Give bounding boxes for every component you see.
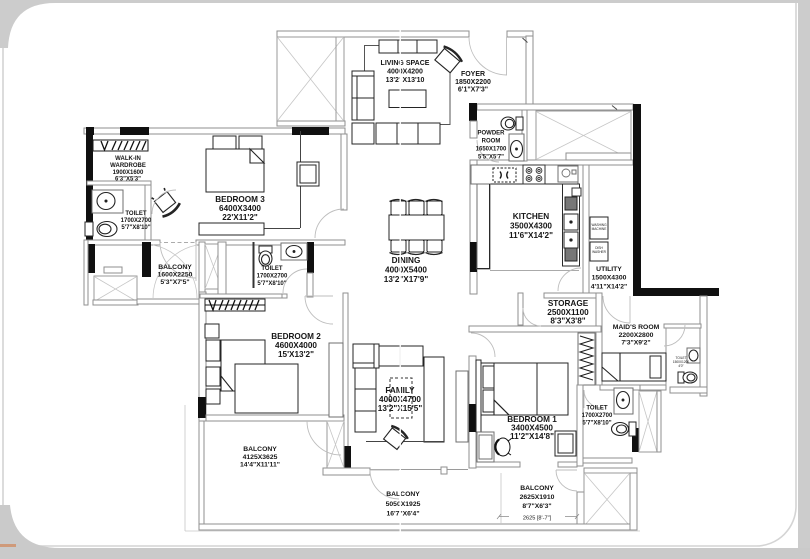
svg-text:4000X4200: 4000X4200 (387, 69, 423, 76)
svg-text:BALCONY: BALCONY (386, 491, 420, 498)
svg-text:WALK-IN: WALK-IN (115, 156, 141, 162)
svg-text:5'7"X8'10": 5'7"X8'10" (121, 225, 150, 231)
svg-text:2625 [8'-7"]: 2625 [8'-7"] (523, 516, 552, 522)
svg-text:WARDROBE: WARDROBE (110, 163, 146, 169)
svg-text:11'2"X14'8": 11'2"X14'8" (510, 432, 554, 441)
svg-text:MACHINE: MACHINE (592, 227, 607, 231)
svg-text:LIVING SPACE: LIVING SPACE (381, 60, 430, 67)
svg-text:POWDER: POWDER (478, 131, 506, 137)
svg-text:13'2"X17'9": 13'2"X17'9" (384, 275, 429, 284)
svg-text:1700X2700: 1700X2700 (257, 274, 288, 280)
svg-text:1700X2700: 1700X2700 (582, 413, 613, 419)
svg-text:1700X2700: 1700X2700 (121, 218, 152, 224)
svg-text:1500X4300: 1500X4300 (592, 275, 627, 282)
svg-text:WASHER: WASHER (592, 250, 607, 254)
svg-text:MAID'S ROOM: MAID'S ROOM (613, 324, 660, 331)
svg-text:22'X11'2": 22'X11'2" (222, 213, 258, 222)
svg-text:1850X2200: 1850X2200 (455, 79, 491, 86)
svg-text:16'7"X6'4": 16'7"X6'4" (386, 511, 419, 518)
svg-text:BALCONY: BALCONY (243, 446, 277, 453)
svg-text:BALCONY: BALCONY (158, 264, 192, 271)
svg-text:8'7"X6'3": 8'7"X6'3" (522, 503, 551, 510)
svg-text:8'3"X3'8": 8'3"X3'8" (550, 317, 585, 326)
svg-text:4125X3625: 4125X3625 (243, 454, 278, 461)
svg-text:1600X2250: 1600X2250 (158, 272, 193, 279)
svg-text:3500X4300: 3500X4300 (510, 222, 552, 231)
svg-text:5'7"X8'10": 5'7"X8'10" (582, 421, 611, 427)
svg-text:TOILET: TOILET (261, 266, 283, 272)
svg-text:TOILET: TOILET (125, 211, 147, 217)
svg-text:5'5"X5'7": 5'5"X5'7" (478, 155, 504, 161)
svg-text:2625X1910: 2625X1910 (520, 494, 555, 501)
svg-text:KITCHEN: KITCHEN (513, 212, 549, 221)
svg-text:TOILET: TOILET (586, 406, 608, 412)
svg-text:15'X13'2": 15'X13'2" (278, 350, 314, 359)
svg-text:14'4"X11'11": 14'4"X11'11" (240, 462, 280, 469)
svg-text:5'7"X8'10": 5'7"X8'10" (257, 281, 286, 287)
svg-text:ROOM: ROOM (482, 139, 501, 145)
svg-text:STORAGE: STORAGE (548, 299, 589, 308)
svg-text:1900X1600: 1900X1600 (113, 170, 144, 176)
svg-text:11'6"X14'2": 11'6"X14'2" (509, 231, 553, 240)
svg-text:BALCONY: BALCONY (520, 485, 554, 492)
svg-text:5'3"X7'5": 5'3"X7'5" (160, 279, 189, 286)
svg-text:BEDROOM 2: BEDROOM 2 (271, 332, 321, 341)
svg-text:4'11"X14'2": 4'11"X14'2" (591, 284, 628, 291)
svg-text:BEDROOM 3: BEDROOM 3 (215, 195, 265, 204)
svg-text:4'0": 4'0" (678, 364, 683, 368)
svg-text:5050X1925: 5050X1925 (386, 501, 421, 508)
svg-text:DINING: DINING (392, 256, 421, 265)
svg-text:FOYER: FOYER (461, 71, 485, 78)
svg-text:7'3"X9'2": 7'3"X9'2" (621, 340, 650, 347)
svg-text:2200X2800: 2200X2800 (619, 332, 654, 339)
svg-text:13'2' X13'10: 13'2' X13'10 (386, 77, 425, 84)
svg-text:4000X5400: 4000X5400 (385, 266, 427, 275)
svg-text:6400X3400: 6400X3400 (219, 204, 261, 213)
svg-text:6'1"X7'3": 6'1"X7'3" (458, 87, 488, 94)
svg-text:UTILITY: UTILITY (596, 266, 622, 273)
svg-text:6'3"X5'3": 6'3"X5'3" (115, 177, 141, 183)
svg-text:1650X1700: 1650X1700 (476, 147, 507, 153)
svg-text:4600X4000: 4600X4000 (275, 341, 317, 350)
